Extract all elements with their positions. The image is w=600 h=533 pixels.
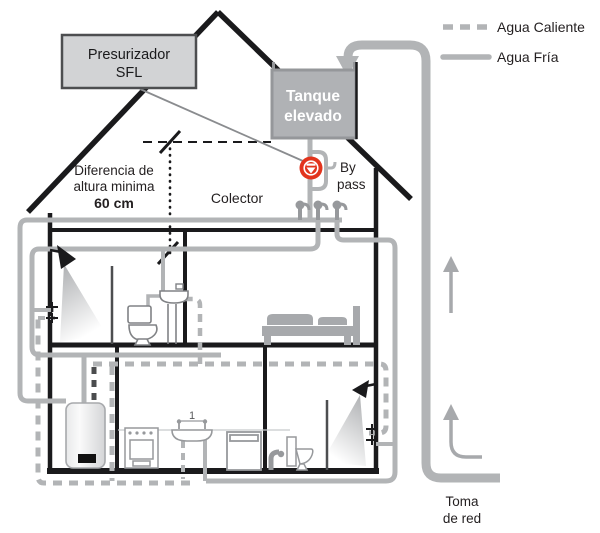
washing-machine-icon (227, 432, 261, 470)
pressurizer-label-box: Presurizador SFL (62, 35, 196, 88)
pressurizer-label: SFL (116, 65, 143, 81)
collector-valve-icon (333, 201, 347, 221)
bed-icon (262, 306, 360, 345)
lower-toilet-icon (287, 437, 313, 470)
lower-shower (322, 380, 378, 470)
legend-hot-label: Agua Caliente (497, 19, 585, 35)
collector-valve-icon (314, 201, 328, 221)
kitchen-sink-icon: 1 (172, 410, 212, 441)
collector-valve-icon (296, 201, 310, 221)
mains-riser-pipe (348, 45, 500, 478)
stove-icon (125, 428, 158, 468)
height-note-label: altura minima (73, 179, 155, 194)
sink-ref-label: 1 (189, 410, 195, 422)
flow-arrow-up-icon (443, 256, 459, 313)
height-note-value: 60 cm (94, 195, 134, 211)
pressurizer-valve-icon (300, 157, 323, 180)
tank-label: Tanque (286, 88, 340, 105)
elevated-tank: Tanque elevado (272, 62, 357, 139)
water-heater-icon (66, 403, 105, 468)
bypass-hook (327, 162, 335, 168)
upper-toilet-icon (128, 306, 157, 345)
plumbing-diagram: Tanque elevado Presurizador SFL (0, 0, 600, 533)
flow-arrow-corner-icon (443, 404, 482, 457)
bypass-label: By (340, 160, 356, 175)
collector-label: Colector (211, 190, 263, 206)
shower-spray (60, 264, 106, 342)
tank-label: elevado (284, 108, 342, 125)
mains-label: de red (443, 511, 481, 526)
hose-bib-icon (271, 451, 284, 470)
shower-head-icon (352, 380, 369, 398)
mains-label: Toma (445, 494, 479, 509)
legend: Agua Caliente Agua Fría (443, 19, 585, 65)
upper-shower (46, 245, 112, 344)
bypass-label: pass (337, 177, 366, 192)
height-note-label: Diferencia de (74, 163, 154, 178)
shower-spray (322, 395, 366, 466)
hot-header-pipe (93, 364, 386, 433)
pressurizer-label: Presurizador (88, 47, 170, 63)
diagram-canvas: Tanque elevado Presurizador SFL (0, 0, 600, 533)
flow-arrows (443, 256, 482, 457)
collector-valves (296, 201, 347, 221)
legend-cold-label: Agua Fría (497, 49, 559, 65)
